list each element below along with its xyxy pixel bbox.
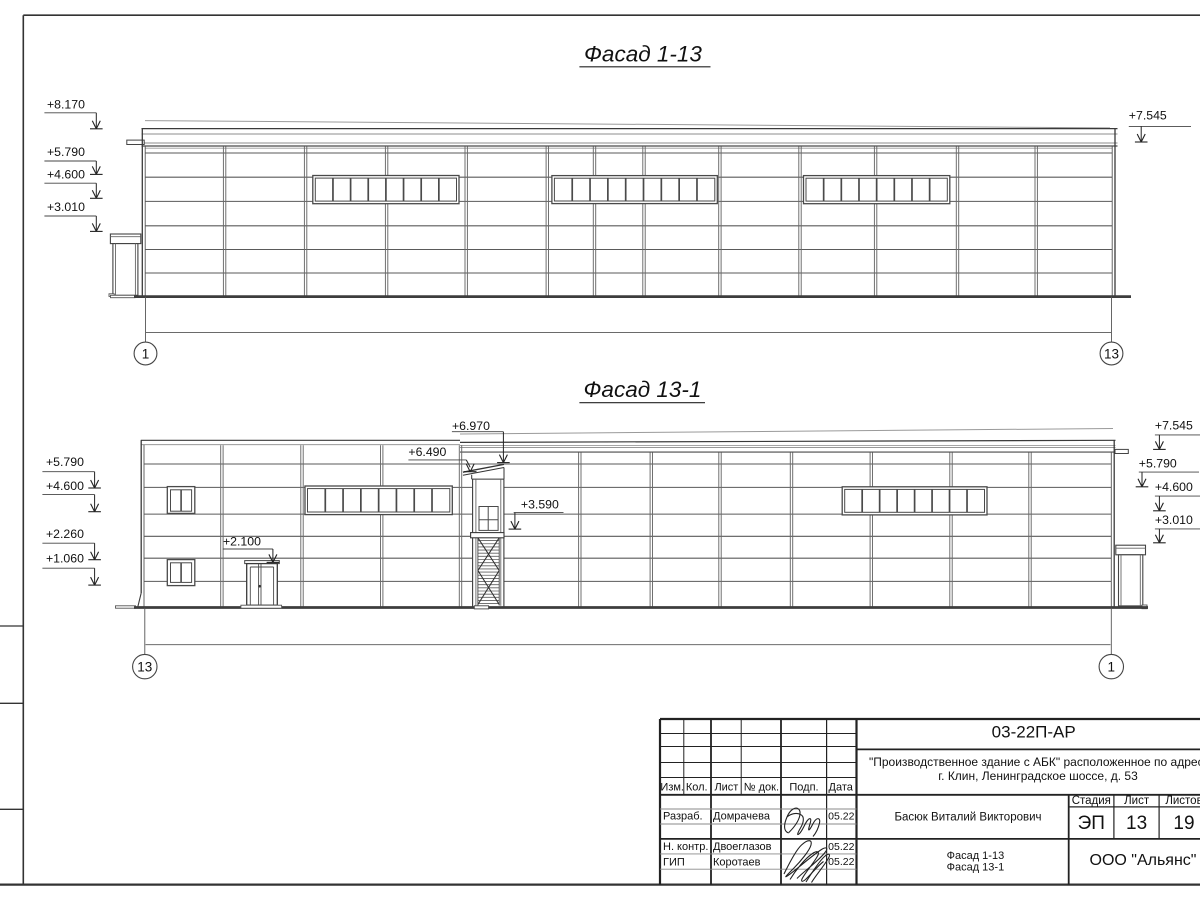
svg-text:Лист: Лист bbox=[1124, 795, 1150, 807]
svg-text:+5.790: +5.790 bbox=[46, 455, 84, 469]
svg-text:Фасад 1-13: Фасад 1-13 bbox=[584, 41, 702, 66]
svg-text:+4.600: +4.600 bbox=[47, 167, 85, 181]
svg-text:03-22П-АР: 03-22П-АР bbox=[992, 723, 1076, 742]
svg-text:05.22: 05.22 bbox=[828, 841, 854, 853]
svg-text:+4.600: +4.600 bbox=[46, 479, 84, 493]
svg-text:Разраб.: Разраб. bbox=[663, 811, 703, 823]
svg-text:13: 13 bbox=[137, 660, 152, 675]
svg-text:+2.100: +2.100 bbox=[223, 535, 261, 549]
svg-text:Подп.: Подп. bbox=[789, 782, 818, 794]
svg-text:Двоеглазов: Двоеглазов bbox=[713, 841, 772, 853]
svg-text:Лист: Лист bbox=[714, 782, 738, 794]
svg-text:Басюк Виталий Викторович: Басюк Виталий Викторович bbox=[894, 812, 1041, 824]
svg-text:1: 1 bbox=[1108, 660, 1116, 675]
svg-text:Фасад 13-1: Фасад 13-1 bbox=[947, 862, 1005, 874]
svg-text:Коротаев: Коротаев bbox=[713, 856, 761, 868]
svg-text:+7.545: +7.545 bbox=[1129, 108, 1167, 122]
svg-text:Фасад 1-13: Фасад 1-13 bbox=[947, 850, 1005, 862]
svg-text:Дата: Дата bbox=[829, 782, 854, 794]
svg-text:№ док.: № док. bbox=[744, 782, 779, 794]
svg-text:13: 13 bbox=[1126, 813, 1147, 834]
svg-text:ГИП: ГИП bbox=[663, 856, 685, 868]
svg-text:г. Клин, Ленинградское шоссе,: г. Клин, Ленинградское шоссе, д. 53 bbox=[938, 769, 1138, 783]
svg-text:+5.790: +5.790 bbox=[1139, 456, 1177, 470]
svg-text:19: 19 bbox=[1173, 813, 1194, 834]
svg-text:Н. контр.: Н. контр. bbox=[663, 841, 708, 853]
svg-text:05.22: 05.22 bbox=[828, 856, 854, 868]
svg-text:+6.490: +6.490 bbox=[408, 445, 446, 459]
svg-text:+5.790: +5.790 bbox=[47, 145, 85, 159]
svg-text:Листов: Листов bbox=[1165, 795, 1200, 807]
svg-text:1: 1 bbox=[142, 346, 150, 361]
svg-text:+3.590: +3.590 bbox=[521, 497, 559, 511]
svg-text:+1.060: +1.060 bbox=[46, 551, 84, 565]
svg-text:+8.170: +8.170 bbox=[47, 97, 85, 111]
svg-text:Стадия: Стадия bbox=[1072, 795, 1111, 807]
svg-text:Кол.: Кол. bbox=[686, 782, 708, 794]
svg-text:ЭП: ЭП bbox=[1078, 813, 1105, 834]
svg-text:"Производственное здание с АБК: "Производственное здание с АБК" располож… bbox=[869, 755, 1200, 769]
svg-text:ООО "Альянс": ООО "Альянс" bbox=[1090, 852, 1197, 869]
svg-text:Домрачева: Домрачева bbox=[713, 811, 771, 823]
svg-text:+4.600: +4.600 bbox=[1155, 480, 1193, 494]
svg-text:05.22: 05.22 bbox=[828, 811, 854, 823]
svg-text:13: 13 bbox=[1104, 346, 1119, 361]
svg-text:+6.970: +6.970 bbox=[452, 419, 490, 433]
svg-text:+3.010: +3.010 bbox=[1155, 513, 1193, 527]
svg-text:+3.010: +3.010 bbox=[47, 200, 85, 214]
svg-text:+7.545: +7.545 bbox=[1155, 419, 1193, 433]
svg-text:Изм.: Изм. bbox=[660, 782, 684, 794]
svg-text:Фасад 13-1: Фасад 13-1 bbox=[584, 377, 702, 402]
svg-text:+2.260: +2.260 bbox=[46, 527, 84, 541]
